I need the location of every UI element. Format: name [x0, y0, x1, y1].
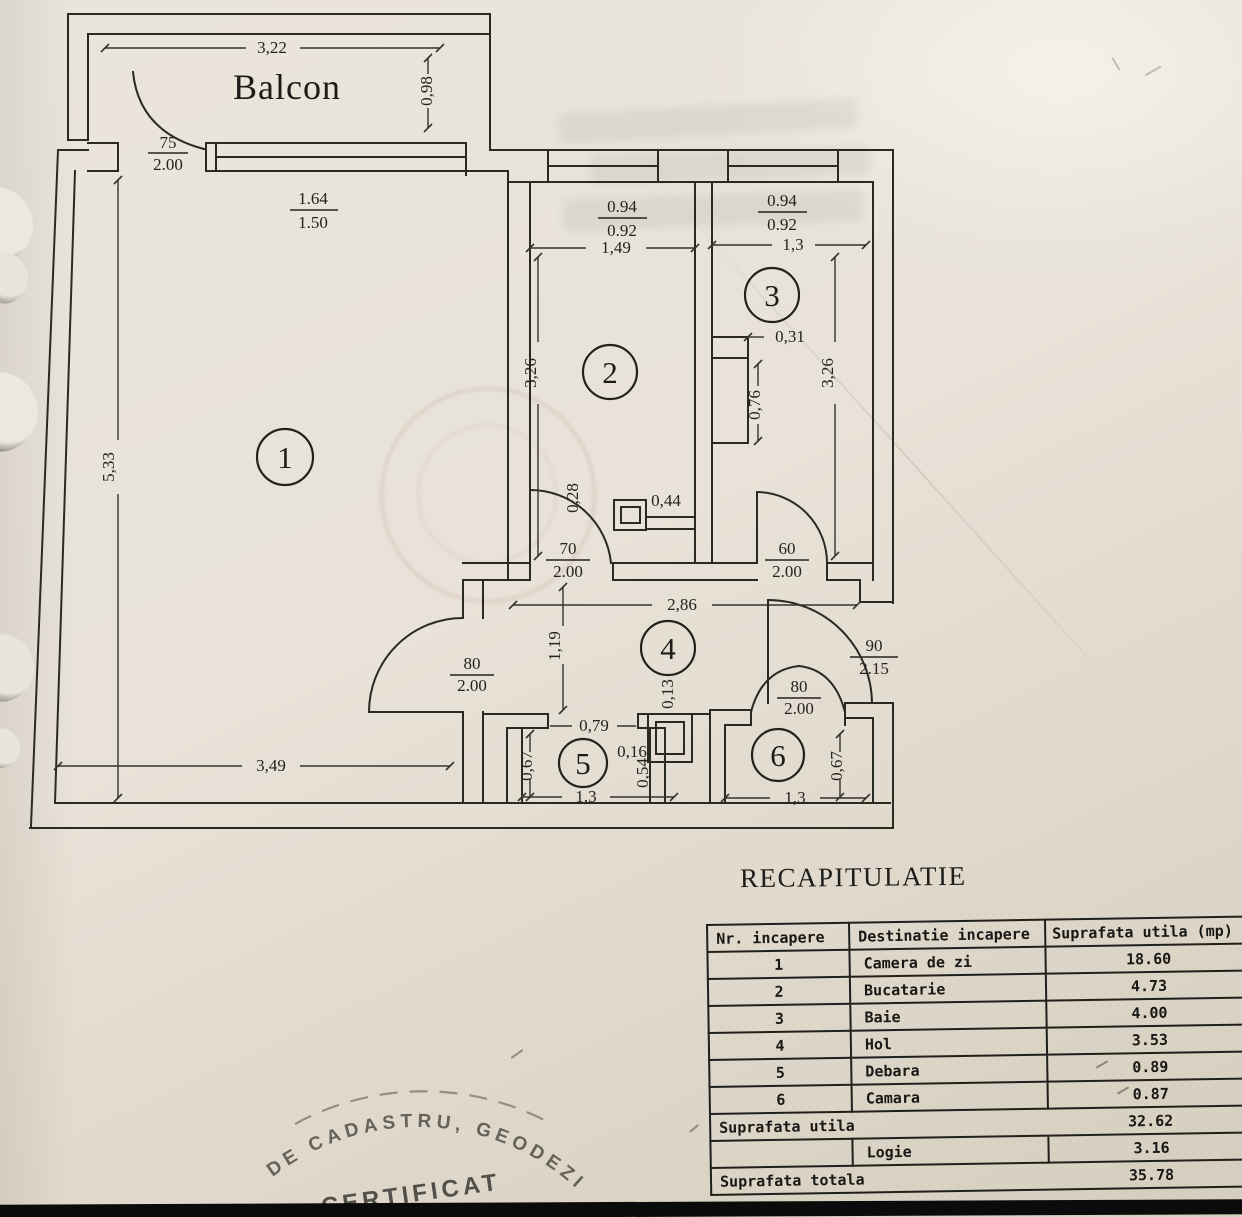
recap-table: Nr. incapere Destinatie incapere Suprafa…: [706, 915, 1242, 1196]
svg-text:DE CADASTRU, GEODEZIE S: DE CADASTRU, GEODEZIE S: [0, 0, 590, 1195]
room-1-number: 1: [277, 440, 293, 475]
svg-text:1.64: 1.64: [298, 189, 328, 208]
svg-text:2.00: 2.00: [153, 155, 183, 174]
dim-room5-width: 1,3: [575, 787, 596, 806]
entry-door-size: 90 2.15: [850, 636, 898, 678]
entry-door-arc: [768, 600, 872, 703]
camara-door-size: 80 2.00: [777, 677, 821, 718]
dim-room1-depth: 5,33: [99, 452, 118, 482]
dim-hall-depth: 1,19: [545, 631, 564, 661]
dim-flue-v: 0,28: [563, 483, 582, 513]
svg-text:2.00: 2.00: [772, 562, 802, 581]
balcony-label: Balcon: [233, 67, 341, 107]
total-label: Suprafata totala: [711, 1163, 1049, 1195]
room-4-number: 4: [660, 631, 676, 666]
svg-text:2.00: 2.00: [784, 699, 814, 718]
dim-hall-step: 0,13: [658, 679, 677, 709]
logie-label: Logie: [852, 1136, 1048, 1166]
room1-top-wall-and-window: [88, 143, 508, 175]
room-6-number: 6: [770, 738, 786, 773]
stamp-arc-text: DE CADASTRU, GEODEZIE S: [0, 0, 590, 1195]
bath-window-size: 0.94 0.92: [758, 191, 807, 234]
dim-balcony-width: 3,22: [257, 38, 287, 57]
subtotal-value: 32.62: [1048, 1105, 1242, 1135]
dim-kitchen-depth: 3,26: [521, 358, 540, 388]
dim-bath-width: 1,3: [782, 235, 803, 254]
svg-text:1.50: 1.50: [298, 213, 328, 232]
room1-window-size: 1.64 1.50: [290, 189, 338, 232]
header-area: Suprafata utila (mp): [1045, 916, 1242, 946]
dim-balcony-depth: 0,98: [417, 76, 436, 106]
dim-room1-width: 3,49: [256, 756, 286, 775]
dim-hall-width: 2,86: [667, 595, 697, 614]
svg-text:75: 75: [160, 133, 177, 152]
shaft-between-5-6: [648, 714, 692, 762]
svg-text:0.94: 0.94: [767, 191, 797, 210]
cadastru-stamp: DE CADASTRU, GEODEZIE S CERTIFICAT: [0, 0, 590, 1217]
total-value: 35.78: [1049, 1159, 1242, 1189]
header-dest: Destinatie incapere: [849, 920, 1045, 950]
scanned-floor-plan-page: Balcon 3,22 0,98 75 2.00 1.64 1.50 5,33 …: [0, 0, 1242, 1217]
svg-text:90: 90: [866, 636, 883, 655]
svg-text:2.15: 2.15: [859, 659, 889, 678]
dim-room6-depth: 0,67: [827, 751, 846, 781]
logie-value: 3.16: [1048, 1132, 1242, 1162]
dim-duct-height: 0,76: [745, 390, 764, 420]
north-wall-windows: [490, 150, 893, 182]
header-nr: Nr. incapere: [707, 923, 849, 952]
recap-table-wrap: Nr. incapere Destinatie incapere Suprafa…: [706, 916, 1224, 1196]
kitchen-door-size: 70 2.00: [546, 539, 590, 581]
dim-room5-door: 0,79: [579, 716, 609, 735]
logie-empty-cell: [710, 1139, 852, 1168]
living-door-arc: [369, 618, 463, 712]
svg-text:60: 60: [779, 539, 796, 558]
recap-title: RECAPITULATIE: [740, 861, 967, 894]
kitchen-window-size: 0.94 0.92: [598, 197, 647, 240]
living-door-size: 80 2.00: [450, 654, 494, 695]
svg-text:80: 80: [464, 654, 481, 673]
svg-text:0.92: 0.92: [767, 215, 797, 234]
room-3-number: 3: [764, 278, 780, 313]
dim-kitchen-width: 1,49: [601, 238, 631, 257]
dim-duct-width: 0,31: [775, 327, 805, 346]
svg-text:80: 80: [791, 677, 808, 696]
dim-room5-depth: 0,67: [517, 751, 536, 781]
room-5-number: 5: [575, 746, 591, 781]
dim-room6-width: 1,3: [784, 788, 805, 807]
svg-text:70: 70: [560, 539, 577, 558]
svg-text:2.00: 2.00: [553, 562, 583, 581]
balcony-door-size: 75 2.00: [148, 133, 188, 174]
outer-walls: [30, 150, 893, 828]
svg-text:2.00: 2.00: [457, 676, 487, 695]
dim-flue-h: 0,44: [651, 491, 681, 510]
svg-text:0.94: 0.94: [607, 197, 637, 216]
interior-partitions: [463, 171, 893, 803]
dim-shaft-height: 0,54: [633, 758, 652, 788]
room-2-number: 2: [602, 355, 618, 390]
bath-door-size: 60 2.00: [765, 539, 809, 581]
dim-bath-depth: 3,26: [818, 358, 837, 388]
